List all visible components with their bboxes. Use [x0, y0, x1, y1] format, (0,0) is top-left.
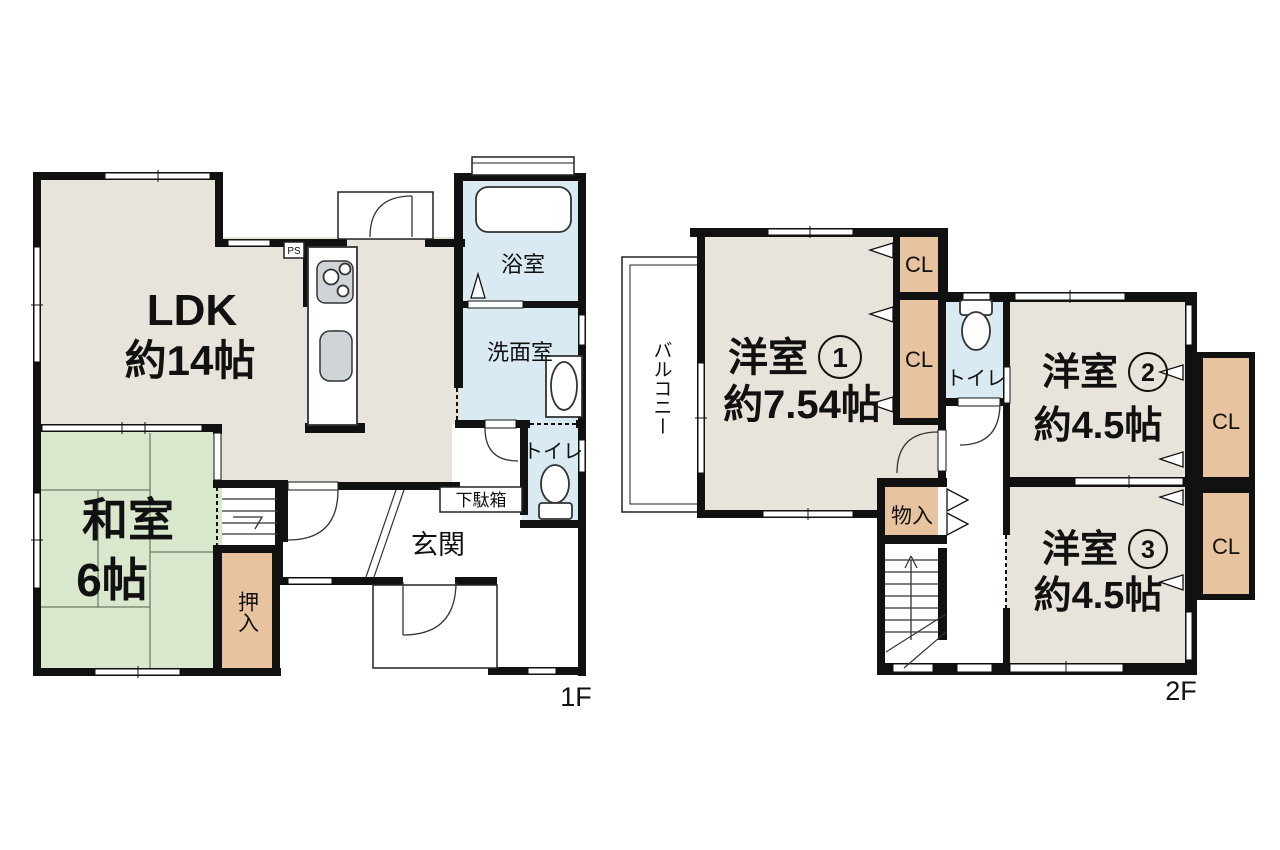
floor-1f-plan: LDK 約14帖 和室 6帖 浴室 洗面室 トイレ 下駄箱 玄関 押入 PS 1… — [31, 157, 592, 712]
western-room-1-number: 1 — [832, 342, 848, 373]
wall — [940, 398, 960, 406]
sliding-door-bath — [468, 301, 523, 308]
wall — [877, 478, 947, 487]
window — [1186, 305, 1192, 345]
genkan-step-line — [366, 490, 404, 577]
wall — [520, 520, 586, 528]
wall — [454, 173, 463, 388]
closet-r2-label: CL — [1212, 409, 1240, 434]
ldk-genkan-door-arc — [288, 490, 338, 540]
washroom-label: 洗面室 — [487, 340, 553, 365]
wall — [938, 228, 948, 302]
wall — [938, 548, 947, 640]
bathtub — [476, 187, 571, 232]
kitchen-sink — [320, 331, 352, 381]
stairs-2f — [885, 556, 946, 668]
door-opening — [958, 398, 1000, 406]
window — [893, 664, 933, 672]
door-opening — [485, 420, 516, 428]
ldk-size-label: 約14帖 — [125, 337, 256, 384]
storage-folding-door — [947, 489, 968, 511]
western-room-1-nook — [893, 425, 939, 478]
oshiire-label: 押入 — [236, 591, 260, 633]
entrance-porch — [373, 585, 497, 668]
toilet-1f-label: トイレ — [523, 441, 583, 463]
balcony-label: バルコニー — [651, 341, 672, 436]
western-room-3-label: 洋室 — [1042, 528, 1118, 571]
floorplan-svg: LDK 約14帖 和室 6帖 浴室 洗面室 トイレ 下駄箱 玄関 押入 PS 1… — [0, 0, 1280, 850]
stairs-1f — [222, 499, 278, 534]
western-room-3-number: 3 — [1141, 536, 1155, 564]
toilet-fixture-1f — [539, 465, 572, 519]
western-room-2-size: 約4.5帖 — [1034, 405, 1163, 447]
getabako-label: 下駄箱 — [456, 491, 507, 510]
window — [579, 315, 585, 345]
window — [228, 240, 270, 246]
wall — [213, 545, 280, 553]
floorplan-canvas: LDK 約14帖 和室 6帖 浴室 洗面室 トイレ 下駄箱 玄関 押入 PS 1… — [0, 0, 1280, 850]
washitsu-area — [33, 424, 222, 676]
washitsu-size-label: 6帖 — [76, 554, 148, 606]
storage-label: 物入 — [891, 505, 933, 528]
pipe-space-label: PS — [287, 246, 301, 257]
western-room-2-label: 洋室 — [1042, 351, 1118, 394]
western-room-2-number: 2 — [1141, 359, 1155, 387]
wall — [215, 172, 223, 247]
window — [963, 293, 990, 300]
door-opening — [938, 430, 946, 471]
toilet-2f-label: トイレ — [946, 368, 1006, 390]
door-opening — [288, 482, 338, 490]
closet-2-label: CL — [905, 347, 933, 372]
back-door-vestibule — [338, 192, 433, 239]
toilet-fixture-2f — [960, 300, 992, 350]
toilet-2f-door-arc — [960, 403, 1000, 445]
wall — [213, 553, 222, 676]
western-room-1-size: 約7.54帖 — [723, 383, 881, 427]
stairs-arrow — [905, 556, 917, 640]
bay-window — [472, 157, 574, 175]
window — [288, 578, 332, 584]
wall — [938, 300, 946, 430]
wall — [877, 478, 885, 675]
closet-1-label: CL — [905, 252, 933, 277]
sliding-partition — [214, 433, 221, 480]
western-room-3-size: 約4.5帖 — [1034, 575, 1163, 617]
wall — [877, 535, 947, 544]
window — [528, 668, 556, 674]
washitsu-label: 和室 — [82, 494, 174, 546]
floor-2f-plan: 洋室 1 約7.54帖 洋室 2 約4.5帖 洋室 3 約4.5帖 トイレ 物入… — [622, 226, 1255, 706]
genkan-label: 玄関 — [411, 530, 465, 560]
ldk-label: LDK — [147, 286, 238, 335]
closet-r3-label: CL — [1212, 534, 1240, 559]
floor-1f-title: 1F — [560, 682, 592, 712]
window — [1186, 612, 1192, 660]
bathroom-label: 浴室 — [501, 252, 545, 277]
window — [957, 664, 992, 672]
storage-folding-door — [947, 513, 968, 535]
floor-2f-title: 2F — [1165, 676, 1197, 706]
western-room-1-label: 洋室 — [728, 336, 808, 380]
hall-1f-area — [452, 424, 522, 488]
vanity-sink — [551, 362, 577, 410]
wall — [576, 420, 586, 428]
wall — [893, 237, 900, 425]
wall — [455, 420, 485, 428]
wall — [893, 418, 945, 425]
wall — [1003, 406, 1010, 535]
